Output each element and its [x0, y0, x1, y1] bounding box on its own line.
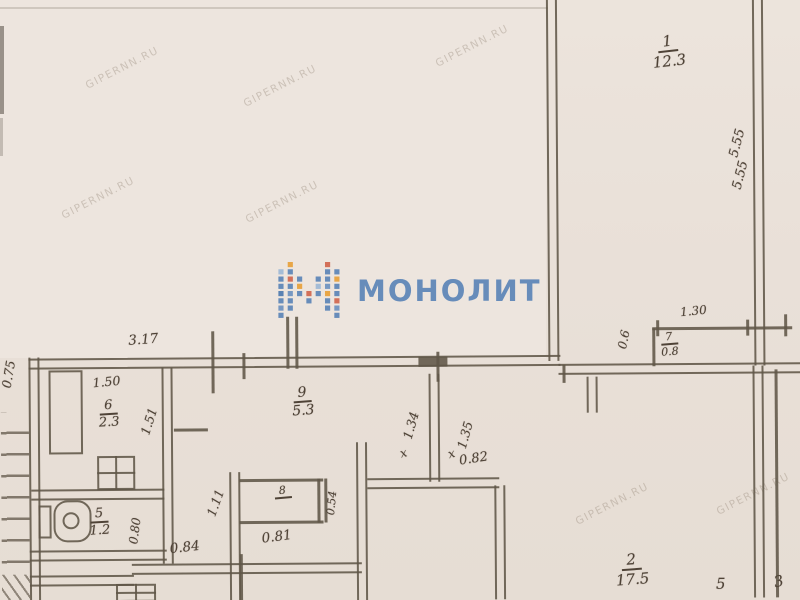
dim-left-height: 0.75 — [0, 359, 18, 389]
door-jamb — [240, 554, 243, 600]
room-area: 2.3 — [89, 413, 130, 431]
dim-edge-a: 5 — [716, 575, 726, 593]
room-label-1: 1 12.3 — [644, 30, 692, 72]
dim-door-c: 0.84 — [169, 538, 201, 557]
room-area: 12.3 — [647, 49, 693, 72]
toilet-bowl-icon — [62, 512, 79, 529]
monolit-logo-text: МОНОЛИТ — [357, 274, 542, 308]
dim-bath-height: 1.51 — [137, 406, 160, 437]
dim-room7-width: 1.30 — [679, 303, 707, 319]
wall-line — [774, 369, 778, 597]
room-number: 6 — [99, 399, 118, 416]
dim-room7-height: 0.6 — [615, 329, 633, 351]
wall — [28, 358, 41, 600]
room-label-8: 8 — [269, 483, 296, 500]
room-area: 1.2 — [80, 522, 121, 540]
room-area: 17.5 — [610, 568, 655, 589]
room-number: 8 — [273, 484, 291, 499]
wall — [356, 442, 368, 600]
room-label-7: 7 0.8 — [651, 329, 687, 359]
room-number: 7 — [660, 331, 678, 346]
dim-wc-width: 0.80 — [126, 517, 143, 545]
door-cross-mark: х — [398, 445, 408, 460]
wall-tick — [562, 365, 565, 383]
bathtub-fixture — [48, 370, 83, 454]
wall — [367, 477, 499, 489]
dim-edge-b: 3 — [772, 572, 785, 592]
room-label-5: 5 1.2 — [79, 505, 121, 540]
dim-hall-right: 1.35 — [454, 420, 476, 451]
wall-tick — [211, 331, 214, 393]
dim-closet-width: 0.54 — [324, 490, 339, 516]
vent-mark — [286, 317, 289, 369]
dim-door-b: 0.81 — [261, 527, 293, 547]
wall — [546, 0, 560, 361]
room-label-9: 9 5.3 — [279, 383, 326, 421]
wall-line — [239, 479, 323, 482]
wall — [30, 550, 167, 562]
wall — [587, 377, 598, 413]
wall — [161, 368, 173, 564]
wall-line — [240, 521, 324, 524]
wall-tick — [242, 353, 245, 379]
wall-tick — [784, 314, 787, 336]
monolit-m-icon — [278, 262, 344, 320]
door-stub — [174, 428, 208, 431]
wall-fill — [418, 357, 447, 367]
room-number: 2 — [621, 552, 642, 571]
stove-fixture — [116, 584, 156, 600]
staircase-hatch — [1, 413, 30, 575]
wall — [31, 489, 164, 501]
room-area: 0.8 — [652, 343, 687, 359]
vent-mark — [295, 317, 298, 369]
sink-cross — [97, 472, 135, 475]
monolit-logo: МОНОЛИТ — [278, 262, 542, 320]
dim-hall-height: 1.11 — [204, 487, 227, 518]
room-number: 1 — [657, 33, 678, 53]
wall — [494, 485, 506, 599]
wall-tick — [436, 352, 439, 382]
dim-door-a: 0.82 — [458, 449, 489, 468]
room-label-2: 2 17.5 — [609, 549, 656, 590]
room-area: 5.3 — [281, 401, 326, 421]
door-cross-mark: х — [446, 446, 456, 461]
wall — [132, 562, 362, 575]
wall-tick — [746, 320, 749, 336]
dim-top-width: 3.17 — [128, 331, 159, 349]
sink-fixture — [97, 456, 135, 490]
dim-hall-left: 1.34 — [400, 410, 422, 441]
dim-bath-width: 1.50 — [92, 373, 121, 391]
wall — [752, 365, 765, 597]
wall — [429, 374, 441, 482]
stove-cross — [116, 591, 156, 594]
wall-line — [317, 479, 320, 523]
wall — [752, 0, 766, 366]
room-number: 9 — [292, 385, 312, 403]
toilet-tank — [38, 505, 51, 538]
dim-room1-depth: 5.55 — [730, 159, 752, 191]
room-number: 5 — [90, 507, 109, 524]
room-label-6: 6 2.3 — [88, 397, 130, 432]
floorplan-scan: GIPERNN.RU GIPERNN.RU GIPERNN.RU GIPERNN… — [0, 0, 800, 600]
diagonal-hatch — [2, 575, 30, 600]
dim-room1-depth: 5.55 — [726, 127, 748, 159]
